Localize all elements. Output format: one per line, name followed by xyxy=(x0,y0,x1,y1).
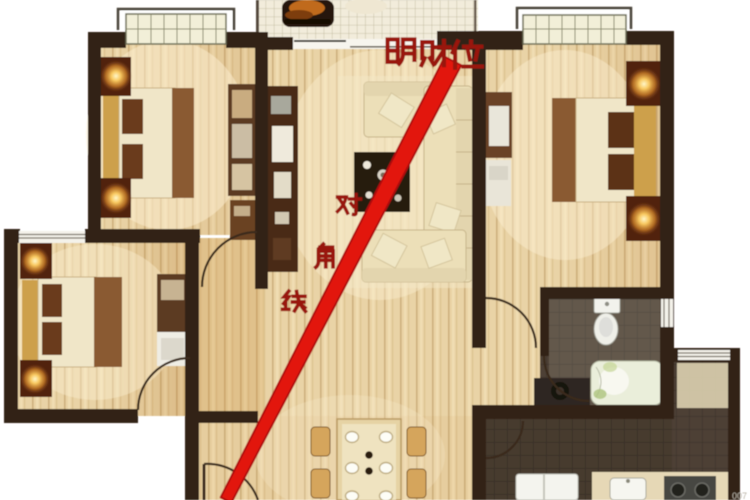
svg-text:007: 007 xyxy=(732,491,747,500)
